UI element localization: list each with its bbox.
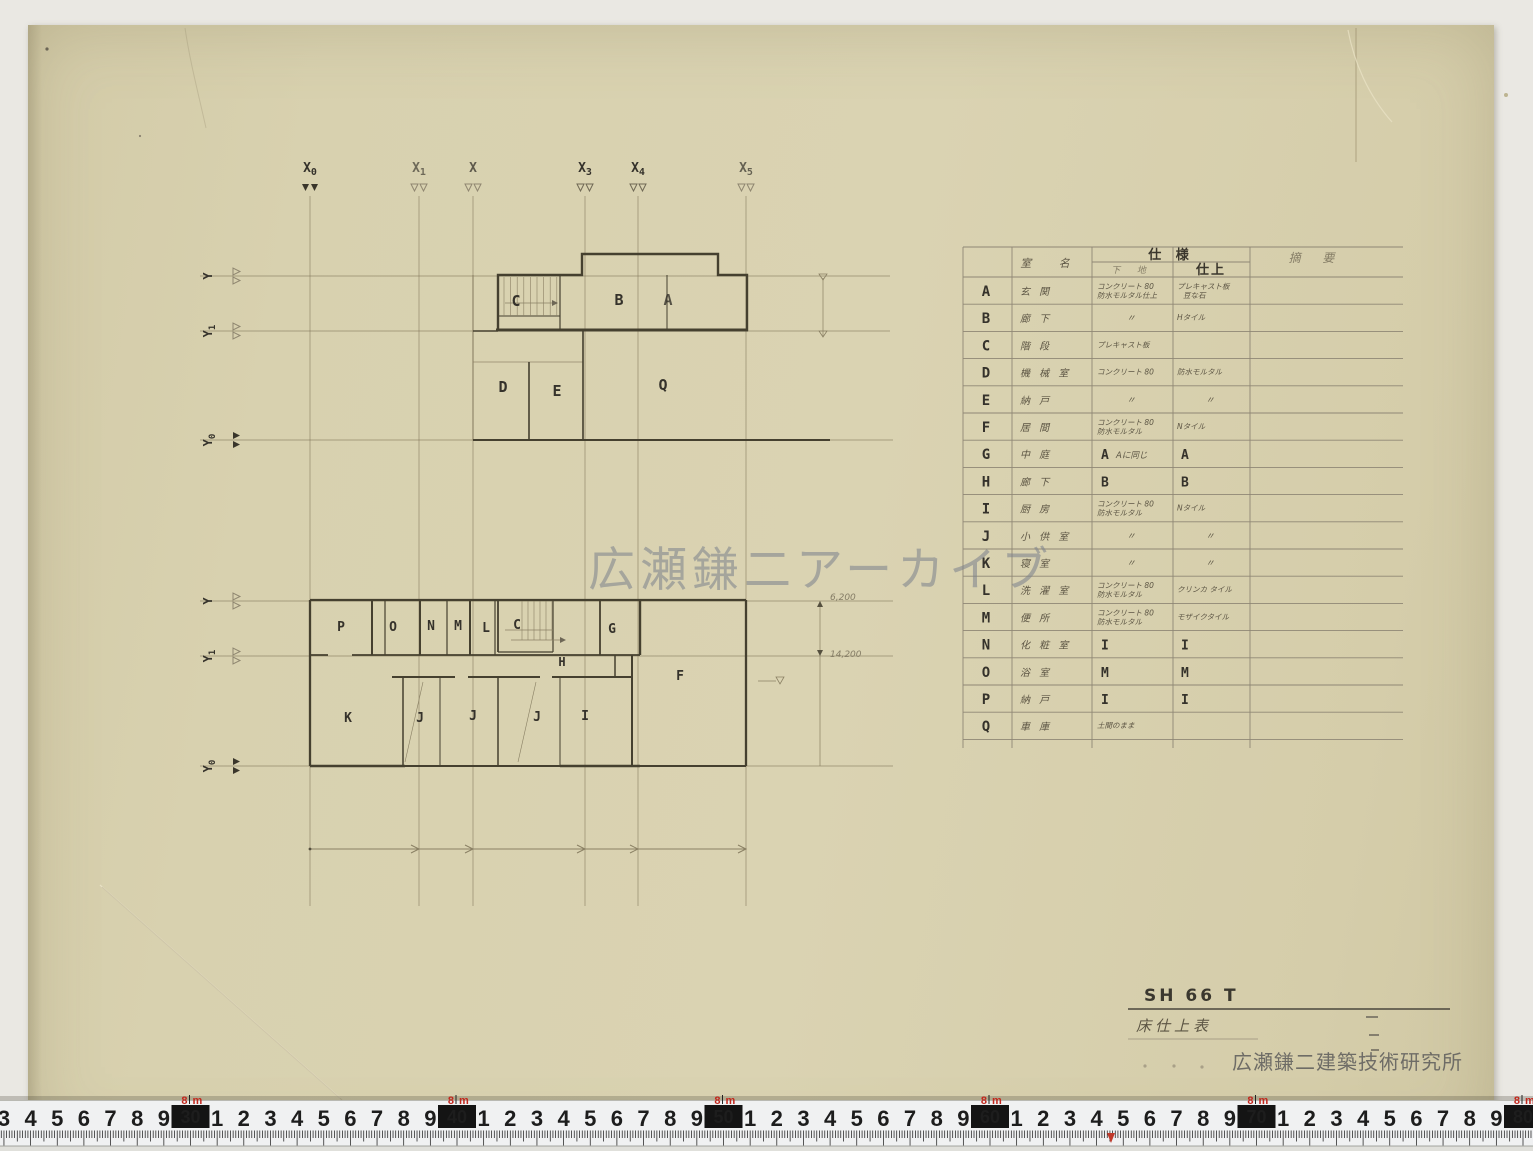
- room-label: Q: [658, 376, 667, 394]
- ruler-cm-digit: 2: [1304, 1106, 1316, 1131]
- schedule-finish-text: 防水モルタル: [1177, 368, 1222, 377]
- ruler-cm-digit: 5: [851, 1106, 863, 1131]
- ruler-cm-digit: 5: [1117, 1106, 1129, 1131]
- ruler-decimeter-number: 70: [1246, 1107, 1266, 1127]
- schedule-rows: A玄 関コンクリート 80防水モルタル仕上プレキャスト板豆な石B廊 下〃Hタイル…: [982, 282, 1233, 735]
- ruler-decimeter-number: 50: [713, 1107, 733, 1127]
- schedule-room-name: 廊 下: [1020, 476, 1052, 488]
- schedule-finish-text: モザイクタイル: [1177, 612, 1230, 621]
- ruler-cm-digit: 4: [824, 1106, 837, 1131]
- schedule-base-ditto: 〃: [1126, 396, 1135, 406]
- schedule-finish-text: Hタイル: [1177, 313, 1206, 322]
- ruler-cm-digit: 2: [238, 1106, 250, 1131]
- schedule-room-name: 中 庭: [1020, 449, 1052, 461]
- ruler-meter-unit: m: [459, 1095, 469, 1107]
- hatch-line: [522, 601, 552, 640]
- schedule-letter: P: [982, 692, 990, 708]
- title-block: SH 66 T 床仕上表 広瀬鎌二建築技術研究所: [1128, 986, 1463, 1074]
- room-label: D: [498, 378, 507, 396]
- ruler-meter-unit: m: [726, 1095, 736, 1107]
- room-label: J: [469, 709, 477, 724]
- schedule-letter: G: [982, 447, 990, 463]
- room-label: O: [389, 620, 397, 635]
- grid-label-y-lower: Y: [201, 597, 215, 605]
- schedule-room-name: 廊 下: [1020, 313, 1052, 325]
- ruler-cm-digit: 7: [1170, 1106, 1182, 1131]
- ruler-meter-unit: m: [1525, 1095, 1533, 1107]
- ruler-meter-digit: 8: [181, 1095, 187, 1107]
- schedule-room-name: 化 粧 室: [1020, 640, 1071, 652]
- drawing-code-stamp: SH 66 T: [1144, 986, 1239, 1006]
- room-label: F: [676, 669, 684, 684]
- dimension-text: 14,200: [830, 650, 862, 660]
- table-header-finish: 仕上: [1195, 262, 1226, 278]
- y-axis-labels: Y Y1 Y0 Y Y1 Y0: [201, 268, 240, 774]
- ruler-cm-digit: 3: [1064, 1106, 1076, 1131]
- schedule-letter: N: [982, 638, 990, 654]
- schedule-base-ditto: 〃: [1126, 314, 1135, 324]
- schedule-room-name: 厨 房: [1020, 504, 1052, 516]
- stair-hatch-lower: [522, 601, 552, 640]
- table-header-base: 下 地: [1111, 265, 1153, 276]
- ruler-decimeter-number: 80: [1513, 1107, 1533, 1127]
- ruler-cm-digit: 6: [344, 1106, 356, 1131]
- grid-label-y0-upper: Y0: [201, 434, 218, 447]
- y-axis-markers: [233, 268, 240, 774]
- ruler-cm-digit: 6: [78, 1106, 90, 1131]
- schedule-base-text: コンクリート 80: [1097, 282, 1154, 291]
- room-label: P: [337, 620, 345, 635]
- ruler-decimeter-number: 60: [980, 1107, 1000, 1127]
- schedule-base-ref: M: [1101, 666, 1109, 681]
- ruler-cm-digit: 8: [131, 1106, 143, 1131]
- ruler-cm-digit: 1: [744, 1106, 756, 1131]
- ruler-cm-digit: 9: [691, 1106, 703, 1131]
- ruler-cm-digit: 5: [51, 1106, 63, 1131]
- ruler-cm-digit: 2: [1037, 1106, 1049, 1131]
- ruler-cm-digit: 9: [424, 1106, 436, 1131]
- level-mark-triangle: [776, 677, 784, 684]
- schedule-finish-text: クリンカ タイル: [1177, 585, 1232, 594]
- ruler-cm-digit: 3: [1330, 1106, 1342, 1131]
- schedule-finish-ref: I: [1181, 693, 1189, 708]
- schedule-letter: D: [982, 366, 990, 382]
- schedule-base-ref: B: [1101, 475, 1109, 490]
- ruler-cm-digit: 8: [664, 1106, 676, 1131]
- grid-label-y0-lower: Y0: [201, 760, 218, 773]
- schedule-finish-ditto: 〃: [1205, 532, 1214, 542]
- schedule-base-ref: I: [1101, 693, 1109, 708]
- ruler-cm-digit: 5: [318, 1106, 330, 1131]
- schedule-letter: C: [982, 338, 990, 354]
- schedule-finish-ref: A: [1181, 448, 1189, 463]
- schedule-letter: O: [982, 665, 990, 681]
- room-label: A: [663, 291, 672, 309]
- room-label: H: [558, 655, 565, 669]
- room-label: J: [533, 710, 541, 725]
- ruler-decimeter-number: 30: [180, 1107, 200, 1127]
- schedule-letter: F: [982, 420, 990, 436]
- schedule-base-ditto: 〃: [1126, 559, 1135, 569]
- grid-label-x0: X0: [303, 161, 317, 178]
- schedule-room-name: 納 戸: [1020, 694, 1052, 706]
- room-label: I: [581, 709, 589, 724]
- schedule-finish-text: プレキャスト板: [1177, 282, 1231, 291]
- ruler-cm-digit: 8: [931, 1106, 943, 1131]
- ruler-cm-digit: 3: [797, 1106, 809, 1131]
- grid-label-x1: X1: [412, 161, 426, 178]
- ruler-cm-digit: 4: [557, 1106, 570, 1131]
- grid-label-y1-upper: Y1: [201, 325, 218, 338]
- schedule-room-name: 浴 室: [1020, 667, 1052, 679]
- schedule-letter: H: [982, 474, 990, 490]
- room-label: G: [608, 622, 616, 637]
- ruler-cm-digit: 9: [957, 1106, 969, 1131]
- schedule-finish-text2: 豆な石: [1183, 291, 1207, 300]
- archive-watermark: 広瀬鎌二アーカイブ: [588, 543, 1053, 598]
- ruler-meter-digit: 8: [981, 1095, 987, 1107]
- room-label: J: [416, 711, 424, 726]
- schedule-base-text: プレキャスト板: [1097, 340, 1151, 349]
- ruler-cm-digit: 6: [877, 1106, 889, 1131]
- schedule-finish-ref: M: [1181, 666, 1189, 681]
- scanned-drawing-canvas: X0 X1 X X3 X4 X5 Y Y1 Y0 Y Y1 Y0: [0, 0, 1533, 1151]
- grid-label-x3: X3: [578, 161, 592, 178]
- room-label: K: [344, 711, 352, 726]
- ruler-cm-digit: 7: [371, 1106, 383, 1131]
- ruler-cm-digit: 6: [611, 1106, 623, 1131]
- ruler-cm-digit: 7: [1437, 1106, 1449, 1131]
- firm-name: 広瀬鎌二建築技術研究所: [1232, 1050, 1463, 1074]
- ruler-meter-unit: m: [1259, 1095, 1269, 1107]
- grid-label-y1-lower: Y1: [201, 650, 218, 663]
- room-label: E: [552, 382, 561, 400]
- schedule-finish-ref: B: [1181, 475, 1189, 490]
- schedule-finish-ditto: 〃: [1205, 559, 1214, 569]
- ruler-cm-digit: 8: [1464, 1106, 1476, 1131]
- ruler-cm-digit: 4: [1090, 1106, 1103, 1131]
- ruler-meter-digit: 8: [1514, 1095, 1520, 1107]
- schedule-finish-ditto: 〃: [1205, 396, 1214, 406]
- schedule-letter: I: [982, 502, 990, 518]
- lower-floor-plan: P O N M L C G H F K J J J I: [310, 600, 746, 766]
- schedule-base-ref: I: [1101, 639, 1109, 654]
- table-header-remarks: 摘 要: [1289, 251, 1344, 265]
- schedule-base-ditto: 〃: [1126, 532, 1135, 542]
- ruler-meter-digit: 8: [448, 1095, 454, 1107]
- ruler-meter-digit: 8: [714, 1095, 720, 1107]
- grid-label-x4: X4: [631, 161, 645, 178]
- ruler-cm-digit: 4: [24, 1106, 37, 1131]
- schedule-finish-text: Nタイル: [1177, 504, 1206, 513]
- ruler-cm-digit: 8: [1197, 1106, 1209, 1131]
- table-header-room: 室 名: [1020, 257, 1082, 270]
- ruler-cm-digit: 3: [0, 1106, 10, 1131]
- ruler-cm-digit: 6: [1410, 1106, 1422, 1131]
- schedule-base-ref: A: [1101, 448, 1109, 463]
- ruler-cm-digit: 4: [1357, 1106, 1370, 1131]
- schedule-base-text2: 防水モルタル: [1097, 590, 1142, 599]
- drawing-title: 床仕上表: [1136, 1017, 1212, 1035]
- ruler-cm-digit: 9: [1490, 1106, 1502, 1131]
- ruler-cm-digit: 8: [398, 1106, 410, 1131]
- schedule-room-name: 車 庫: [1020, 721, 1052, 733]
- schedule-base-text2: 防水モルタル: [1097, 427, 1142, 436]
- schedule-letter: M: [982, 610, 990, 626]
- finish-schedule-table: 室 名 仕 様 下 地 仕上 摘 要 A玄 関コンクリート 80防水モルタル仕上…: [963, 247, 1403, 748]
- schedule-room-name: 便 所: [1020, 612, 1052, 624]
- schedule-base-note: Aに同じ: [1115, 451, 1148, 461]
- ruler-cm-digit: 5: [584, 1106, 596, 1131]
- table-header-spec: 仕 様: [1147, 247, 1194, 263]
- grid-label-y-upper: Y: [201, 272, 215, 280]
- schedule-room-name: 階 段: [1020, 340, 1052, 352]
- schedule-base-text2: 防水モルタル: [1097, 509, 1142, 518]
- room-label: C: [511, 292, 520, 310]
- measuring-tape: 3456789308m123456789408m123456789508m123…: [0, 1095, 1533, 1151]
- ruler-cm-digit: 4: [291, 1106, 304, 1131]
- ruler-cm-digit: 3: [531, 1106, 543, 1131]
- room-label: M: [454, 619, 462, 634]
- grid-label-x2: X: [469, 161, 477, 176]
- grid-label-x5: X5: [739, 161, 753, 178]
- schedule-room-name: 納 戸: [1020, 395, 1052, 407]
- ruler-cm-digit: 1: [211, 1106, 223, 1131]
- schedule-letter: Q: [982, 719, 990, 735]
- schedule-base-text: コンクリート 80: [1097, 581, 1154, 590]
- room-label: B: [614, 291, 623, 309]
- schedule-finish-text: Nタイル: [1177, 422, 1206, 431]
- schedule-room-name: 機 械 室: [1020, 368, 1071, 380]
- ruler-cm-digit: 7: [637, 1106, 649, 1131]
- schedule-room-name: 居 間: [1020, 423, 1052, 434]
- ruler-cm-digit: 5: [1384, 1106, 1396, 1131]
- ruler-cm-digit: 1: [478, 1106, 490, 1131]
- x-axis-markers: [302, 184, 754, 191]
- schedule-base-text: コンクリート 80: [1097, 608, 1154, 617]
- ruler-cm-digit: 9: [158, 1106, 170, 1131]
- ruler-cm-digit: 1: [1011, 1106, 1023, 1131]
- schedule-base-text: 土間のまま: [1097, 721, 1135, 730]
- ruler-cm-digit: 3: [264, 1106, 276, 1131]
- schedule-letter: E: [982, 393, 990, 409]
- ruler-cm-digit: 7: [904, 1106, 916, 1131]
- drawing-linework: X0 X1 X X3 X4 X5 Y Y1 Y0 Y Y1 Y0: [0, 0, 1533, 1151]
- x-axis-labels: X0 X1 X X3 X4 X5: [302, 161, 754, 191]
- schedule-base-text: コンクリート 80: [1097, 418, 1154, 427]
- room-label: C: [513, 618, 521, 633]
- schedule-letter: B: [982, 311, 990, 327]
- room-label: N: [427, 619, 435, 634]
- schedule-room-name: 玄 関: [1020, 286, 1052, 298]
- ruler-cm-digit: 2: [504, 1106, 516, 1131]
- ruler-cm-digit: 9: [1224, 1106, 1236, 1131]
- ruler-cm-digit: 1: [1277, 1106, 1289, 1131]
- ruler-cm-digit: 7: [104, 1106, 116, 1131]
- ruler-meter-unit: m: [193, 1095, 203, 1107]
- schedule-finish-ref: I: [1181, 639, 1189, 654]
- schedule-base-text2: 防水モルタル仕上: [1097, 291, 1157, 300]
- schedule-base-text: コンクリート 80: [1097, 500, 1154, 509]
- upper-floor-plan: C B A D E Q: [473, 254, 830, 440]
- schedule-letter: A: [982, 284, 991, 300]
- ruler-meter-digit: 8: [1247, 1095, 1253, 1107]
- schedule-base-text2: 防水モルタル: [1097, 617, 1142, 626]
- room-label: L: [482, 621, 490, 636]
- schedule-base-text: コンクリート 80: [1097, 368, 1154, 377]
- schedule-room-name: 小 供 室: [1020, 531, 1071, 543]
- ruler-meter-unit: m: [992, 1095, 1002, 1107]
- ruler-decimeter-number: 40: [447, 1107, 467, 1127]
- ruler-cm-digit: 6: [1144, 1106, 1156, 1131]
- ruler-cm-digit: 2: [771, 1106, 783, 1131]
